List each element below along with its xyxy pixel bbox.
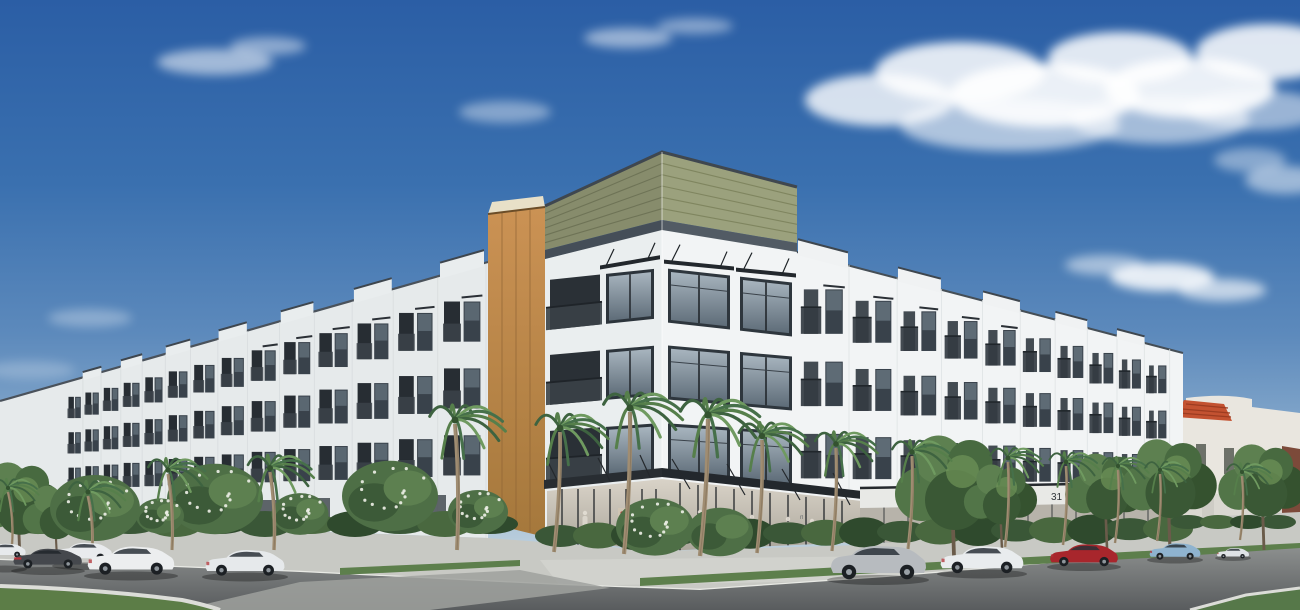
window-glass [922, 312, 935, 330]
balcony-railing [901, 392, 919, 416]
window-glass [465, 303, 480, 321]
flower [288, 516, 291, 519]
balcony-railing [1089, 365, 1101, 383]
mannequin [750, 515, 754, 519]
flower [383, 507, 386, 510]
flower [665, 521, 668, 524]
balcony-railing [84, 405, 92, 415]
balcony-railing [945, 397, 961, 420]
flower [465, 514, 468, 517]
flower [289, 497, 292, 500]
flower [162, 518, 165, 521]
balcony-railing [123, 436, 132, 447]
architectural-rendering: rl que 31 [0, 0, 1300, 610]
window-glass [94, 394, 98, 404]
balcony-railing [103, 401, 111, 411]
flower [150, 517, 153, 520]
flower [103, 513, 106, 516]
flower [422, 476, 425, 479]
palm-crown [704, 411, 712, 419]
window-glass [1040, 449, 1050, 464]
window-glass [1159, 366, 1165, 379]
window-glass [418, 440, 431, 457]
window-glass [1105, 354, 1113, 368]
window-glass [94, 430, 98, 440]
flower [155, 519, 158, 522]
flower [480, 516, 483, 519]
window-glass [1004, 389, 1015, 405]
balcony-railing [901, 327, 919, 351]
window-glass [826, 363, 841, 383]
window-glass [180, 416, 187, 428]
palm-crown [1006, 456, 1011, 461]
balcony-railing [801, 307, 821, 334]
flower [473, 517, 476, 520]
flower [497, 498, 500, 501]
balcony-railing [67, 444, 74, 454]
balcony-railing [1057, 359, 1070, 378]
flower [405, 467, 408, 470]
balcony-railing [1119, 418, 1130, 435]
balcony-railing [251, 418, 264, 432]
window-glass [1133, 360, 1140, 373]
balcony-railing [193, 380, 204, 392]
cloud [1214, 148, 1286, 172]
cloud [230, 37, 306, 55]
balcony-railing [123, 396, 132, 407]
shrub [384, 470, 432, 505]
flower [403, 495, 406, 498]
balcony-railing [801, 452, 821, 479]
palm-crown [165, 467, 170, 472]
window-glass [1040, 394, 1050, 409]
flower [230, 470, 233, 473]
window-glass [299, 343, 309, 357]
balcony-railing [318, 408, 332, 423]
scene-canvas: rl que 31 [0, 0, 1300, 610]
palm-crown [759, 433, 765, 439]
window-glass [76, 398, 80, 408]
flower [282, 503, 285, 506]
flower [399, 501, 402, 504]
address-number: 31 [1051, 492, 1063, 503]
flower [145, 506, 148, 509]
balcony-railing [67, 409, 74, 419]
hedge [1260, 515, 1296, 529]
palm-crown [1158, 468, 1162, 472]
balcony-railing [221, 422, 233, 435]
flower [175, 504, 178, 507]
window-glass [965, 383, 977, 400]
cloud [657, 18, 733, 34]
window-glass [113, 427, 118, 437]
flower [151, 501, 154, 504]
flower [666, 526, 669, 529]
flower [300, 495, 303, 498]
flower [487, 492, 490, 495]
window-glass [336, 334, 347, 349]
window-glass [299, 397, 309, 411]
flower [67, 493, 70, 496]
flower [160, 499, 163, 502]
flower [283, 514, 286, 517]
balcony-railing [103, 439, 111, 449]
balcony-railing [398, 397, 415, 414]
flower [67, 500, 70, 503]
window-glass [180, 372, 187, 384]
window-glass [113, 389, 118, 399]
window-glass [235, 407, 243, 420]
balcony-railing [144, 391, 154, 402]
window-glass [1004, 331, 1015, 347]
balcony-railing [318, 352, 332, 367]
flower [656, 502, 659, 505]
window-glass [76, 433, 80, 443]
window-glass [1040, 339, 1050, 354]
palm-crown [452, 417, 459, 424]
palm-crown [85, 489, 90, 494]
flower [282, 507, 285, 510]
palm-crown [1116, 464, 1120, 468]
balcony-railing [283, 360, 296, 374]
flower [402, 489, 405, 492]
balcony-railing [1089, 415, 1101, 433]
window-glass [76, 469, 80, 479]
flower [227, 492, 230, 495]
flower [220, 508, 223, 511]
flower [167, 499, 170, 502]
palm-crown [626, 404, 633, 411]
window-glass [336, 447, 347, 462]
window-glass [156, 462, 162, 473]
palm-crown [1240, 470, 1244, 474]
flower [373, 471, 376, 474]
flower [360, 488, 363, 491]
window-glass [1074, 347, 1083, 361]
window-glass [375, 384, 387, 400]
flower [247, 479, 250, 482]
window-glass [465, 436, 480, 454]
balcony-railing [84, 442, 92, 452]
window-glass [965, 322, 977, 339]
flower [302, 518, 305, 521]
balcony-railing [985, 402, 1000, 423]
window-glass [266, 402, 275, 416]
flower [633, 528, 636, 531]
palm-crown [909, 449, 914, 454]
shrub [209, 473, 257, 508]
flower [483, 514, 486, 517]
corner-tower-windows [546, 243, 796, 486]
window-glass [133, 464, 138, 475]
balcony-railing [283, 413, 296, 427]
flower [478, 492, 481, 495]
balcony-railing [168, 386, 178, 398]
flower [216, 470, 219, 473]
window-glass [375, 324, 387, 340]
flower [641, 505, 644, 508]
flower [208, 510, 211, 513]
window-glass [418, 314, 431, 331]
cloud [1178, 279, 1266, 301]
flower [318, 500, 321, 503]
balcony-railing [1146, 377, 1157, 394]
cloud [48, 309, 132, 327]
window-glass [375, 444, 387, 460]
flower [228, 498, 231, 501]
balcony-railing [144, 475, 154, 486]
flower [363, 499, 366, 502]
flower [70, 510, 73, 513]
balcony-railing [801, 379, 821, 406]
window-glass [876, 370, 890, 389]
balcony-railing [443, 324, 461, 342]
window-glass [266, 351, 275, 365]
flower [461, 512, 464, 515]
balcony-railing [357, 343, 373, 359]
window-glass [826, 290, 841, 310]
window-glass [1159, 412, 1165, 425]
palm-crown [557, 425, 564, 432]
balcony-railing [357, 403, 373, 419]
shrub [716, 514, 749, 538]
balcony-railing [1057, 411, 1070, 430]
window-glass [156, 378, 162, 389]
flower [667, 503, 670, 506]
flower [144, 510, 147, 513]
flower [658, 534, 661, 537]
balcony-railing [1023, 352, 1037, 372]
balcony-railing [144, 433, 154, 444]
mannequin [786, 517, 790, 521]
flower [166, 513, 169, 516]
balcony-railing [251, 367, 264, 381]
flower [391, 467, 394, 470]
flower [308, 495, 311, 498]
balcony-railing [853, 386, 872, 411]
flower [631, 513, 634, 516]
flower [486, 510, 489, 513]
window-glass [465, 369, 480, 387]
window-glass [206, 366, 213, 378]
flower [681, 510, 684, 513]
window-glass [156, 420, 162, 431]
window-glass [133, 424, 138, 435]
window-glass [922, 377, 935, 395]
cloud [459, 101, 551, 123]
window-glass [133, 384, 138, 395]
balcony-railing [168, 430, 178, 442]
flower [467, 494, 470, 497]
flower [649, 535, 652, 538]
balcony-railing [221, 374, 233, 387]
flower [188, 502, 191, 505]
flower [224, 504, 227, 507]
window-glass [876, 302, 890, 321]
balcony-railing [985, 344, 1000, 365]
balcony-railing [318, 465, 332, 480]
balcony-railing [193, 426, 204, 438]
flower [196, 506, 199, 509]
flower [125, 489, 128, 492]
balcony-railing [853, 318, 872, 343]
window-decal-upper: rl [800, 515, 803, 521]
balcony-railing [945, 336, 961, 359]
balcony-railing [1023, 407, 1037, 427]
window-glass [1074, 399, 1083, 413]
palm-crown [1064, 460, 1069, 465]
flower [165, 510, 168, 513]
flower [371, 503, 374, 506]
balcony-railing [1146, 422, 1157, 439]
flower [305, 515, 308, 518]
flower [662, 530, 665, 533]
palm-crown [833, 441, 839, 447]
window-glass [336, 391, 347, 406]
window-glass [1133, 408, 1140, 421]
flower [639, 532, 642, 535]
flower [185, 491, 188, 494]
flower [107, 501, 110, 504]
cloud [584, 28, 672, 48]
window-glass [418, 377, 431, 394]
flower [146, 515, 149, 518]
flower [307, 508, 310, 511]
flower [295, 518, 298, 521]
flower [395, 505, 398, 508]
window-glass [206, 412, 213, 424]
flower [485, 506, 488, 509]
window-glass [235, 455, 243, 468]
window-glass [113, 466, 118, 476]
window-glass [235, 359, 243, 372]
window-glass [1105, 404, 1113, 418]
balcony-railing [1119, 371, 1130, 388]
balcony-railing [398, 334, 415, 351]
flower [99, 516, 102, 519]
flower [361, 480, 364, 483]
mannequin [583, 511, 587, 515]
flower [630, 520, 633, 523]
palm-crown [267, 465, 273, 471]
palm-crown [6, 486, 10, 490]
flower [307, 512, 310, 515]
cloud [1065, 255, 1145, 275]
